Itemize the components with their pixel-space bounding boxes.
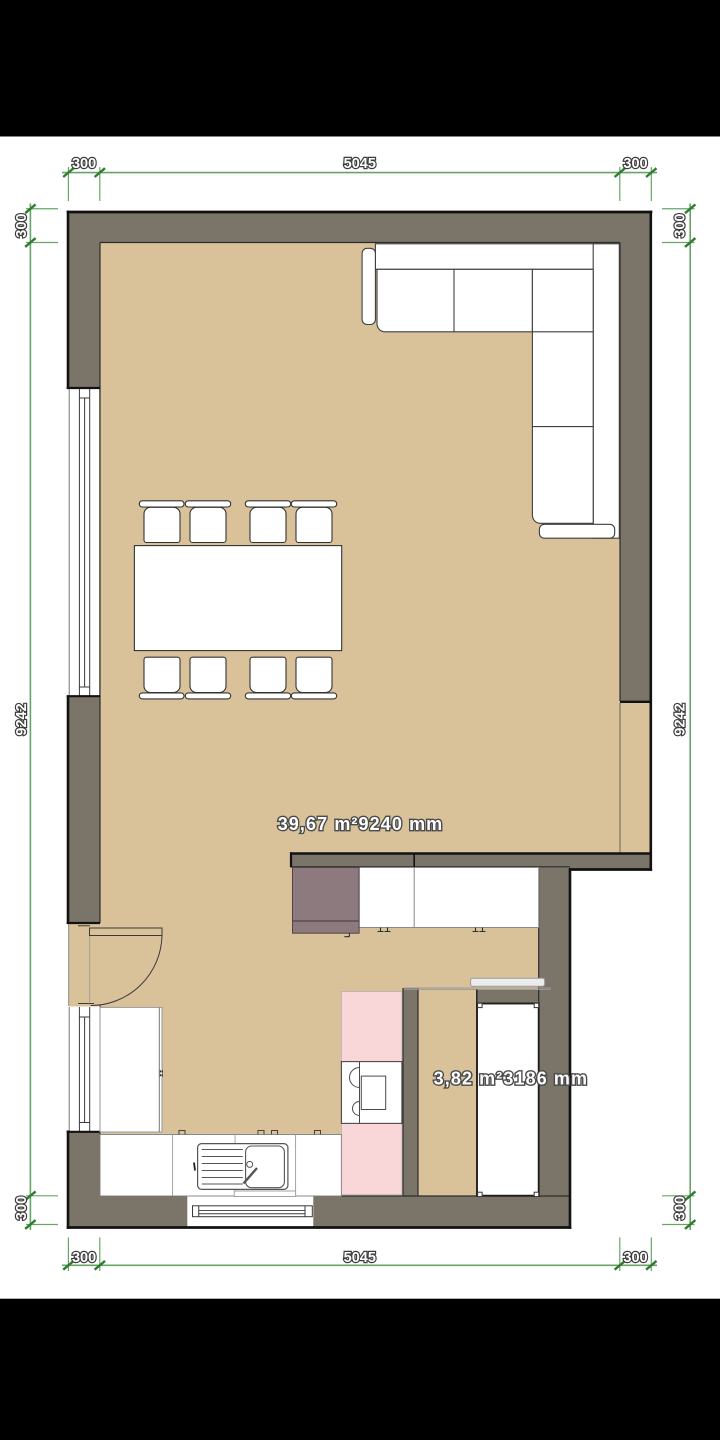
svg-text:300: 300 xyxy=(623,1250,647,1266)
svg-text:39,67 m²9240 mm: 39,67 m²9240 mm xyxy=(278,814,444,834)
svg-text:300: 300 xyxy=(72,156,96,172)
svg-text:300: 300 xyxy=(623,156,647,172)
svg-text:300: 300 xyxy=(673,1196,689,1220)
svg-text:5045: 5045 xyxy=(344,156,376,172)
svg-text:300: 300 xyxy=(14,1196,30,1220)
svg-text:5045: 5045 xyxy=(344,1250,376,1266)
svg-text:300: 300 xyxy=(72,1250,96,1266)
svg-text:300: 300 xyxy=(673,213,689,237)
svg-text:300: 300 xyxy=(14,213,30,237)
svg-text:3,82 m²3186 mm: 3,82 m²3186 mm xyxy=(434,1069,589,1089)
svg-text:9242: 9242 xyxy=(14,703,30,735)
svg-text:9242: 9242 xyxy=(673,703,689,735)
